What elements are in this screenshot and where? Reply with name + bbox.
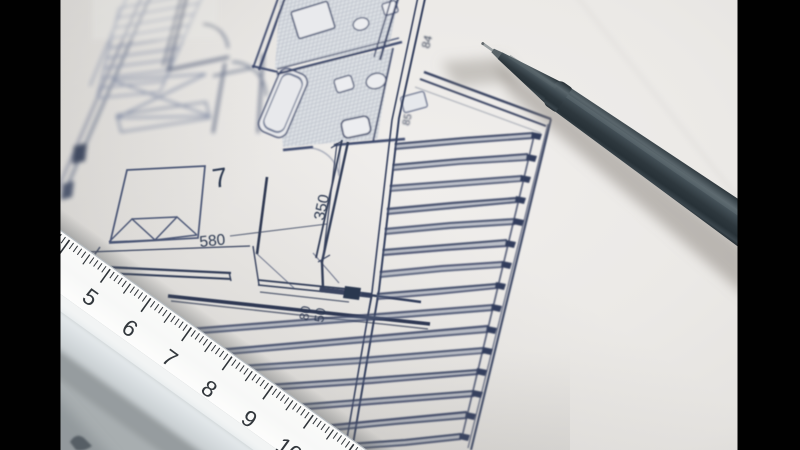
svg-text:50: 50: [311, 307, 328, 324]
svg-text:580: 580: [199, 231, 227, 251]
